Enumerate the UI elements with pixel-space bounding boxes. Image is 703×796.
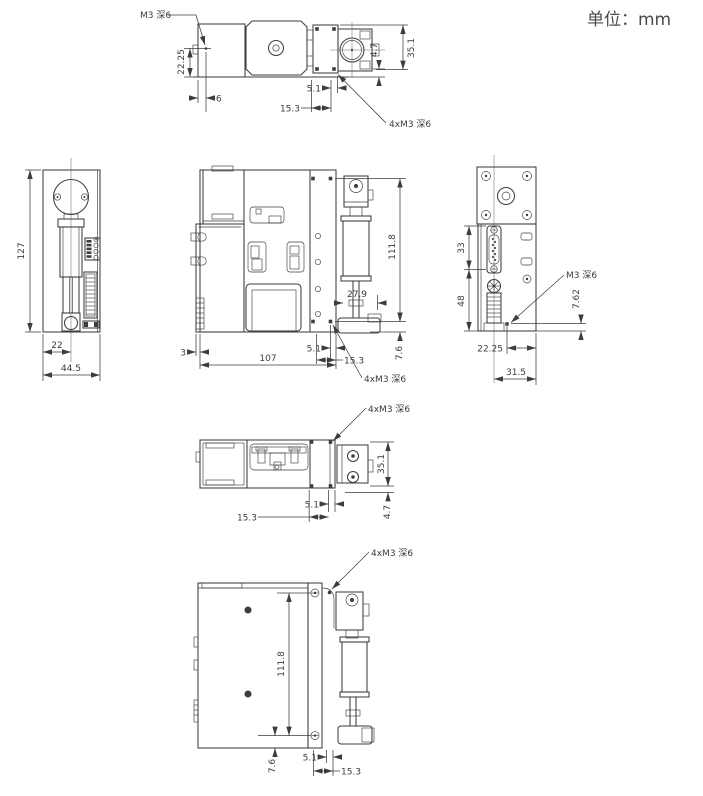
- dim-15-3: 15.3: [237, 514, 257, 524]
- mount-hole-dot: [310, 440, 314, 444]
- syringe-assembly-bottom: [322, 588, 374, 744]
- thread-note-4xm3: 4xM3 深6: [364, 374, 406, 385]
- screw-dot: [245, 691, 252, 698]
- rear-view-body: [196, 440, 373, 488]
- mount-hole-dot: [329, 320, 333, 324]
- mount-hole-dot: [310, 484, 314, 488]
- front-view-dimensions: 111.8 27.9 3 107 5.1 15.3: [180, 179, 406, 386]
- dim-7-6: 7.6: [268, 759, 278, 774]
- engineering-drawing-page: 单位：mm: [0, 0, 703, 796]
- dim-33: 33: [457, 242, 467, 253]
- bottom-view: 4xM3 深6 111.8 7.6 5.1 15.3: [194, 548, 413, 778]
- units-label: 单位：mm: [587, 10, 671, 30]
- dim-15-3: 15.3: [344, 357, 364, 367]
- thread-note-m3: M3 深6: [140, 10, 171, 21]
- mount-hole-dot: [329, 440, 333, 444]
- left-view-body: [43, 158, 100, 362]
- dim-6: 6: [216, 95, 222, 105]
- window-cutouts: [246, 242, 304, 331]
- dim-5-1: 5.1: [303, 754, 317, 764]
- mounting-plate-top: [313, 25, 338, 73]
- mount-hole-dot: [332, 27, 336, 31]
- dim-7-6: 7.6: [395, 346, 405, 361]
- top-view-dimensions: M3 深6 22.25 6 5.1 15.3: [140, 10, 431, 130]
- rear-view-dimensions: 4xM3 深6 35.1 4.7 5.1 15.3: [237, 404, 410, 524]
- dim-5-1: 5.1: [305, 501, 319, 511]
- dim-35-1: 35.1: [377, 454, 387, 474]
- valve-block-rear: [337, 445, 373, 483]
- dim-22-25: 22.25: [477, 345, 503, 355]
- motor-shaft-circle: [269, 41, 284, 56]
- dim-4-7: 4.7: [370, 43, 380, 57]
- top-view-body: [193, 21, 385, 78]
- mounting-strip: [311, 177, 332, 324]
- mount-hole-dot: [329, 177, 333, 181]
- dim-3: 3: [180, 349, 186, 359]
- m3-hole-dot: [505, 322, 508, 325]
- dim-15-3: 15.3: [280, 105, 300, 115]
- dim-111-8: 111.8: [388, 234, 398, 260]
- thread-note-4xm3: 4xM3 深6: [389, 119, 431, 130]
- mount-hole-dot: [311, 320, 315, 324]
- drive-gear: [488, 279, 501, 293]
- thread-note-4xm3: 4xM3 深6: [371, 548, 413, 559]
- right-side-view: 33 48 M3 深6 7.62 22.25 31.5: [457, 155, 597, 385]
- dim-22: 22: [51, 341, 62, 351]
- dim-31-5: 31.5: [506, 368, 526, 378]
- dim-48: 48: [457, 295, 467, 307]
- mount-hole-dot: [315, 67, 319, 71]
- bracket-detail: [250, 444, 308, 470]
- leader-line: [168, 15, 205, 45]
- dim-4-7: 4.7: [383, 505, 393, 519]
- dim-44-5: 44.5: [61, 364, 81, 374]
- thread-note-4xm3: 4xM3 深6: [368, 404, 410, 415]
- side-module: [191, 224, 244, 332]
- left-side-view: 127 22 44.5: [17, 158, 100, 381]
- mount-hole-dot: [332, 67, 336, 71]
- dim-27-9: 27.9: [347, 290, 367, 300]
- dim-5-1: 5.1: [307, 85, 321, 95]
- dim-35-1: 35.1: [407, 38, 417, 58]
- dim-5-1: 5.1: [307, 345, 321, 355]
- dim-7-62: 7.62: [572, 289, 582, 309]
- bottom-view-dimensions: 4xM3 深6 111.8 7.6 5.1 15.3: [258, 548, 413, 778]
- front-view: 111.8 27.9 3 107 5.1 15.3: [180, 166, 406, 385]
- mount-hole-dot: [311, 177, 315, 181]
- rear-view: 4xM3 深6 35.1 4.7 5.1 15.3: [196, 404, 410, 524]
- mount-hole-dot: [329, 484, 333, 488]
- front-view-body: [191, 166, 381, 333]
- screw-dot: [245, 607, 252, 614]
- thread-note-m3: M3 深6: [566, 270, 597, 281]
- dim-107: 107: [259, 354, 276, 364]
- top-view: M3 深6 22.25 6 5.1 15.3: [140, 10, 431, 130]
- dim-111-8: 111.8: [277, 651, 287, 677]
- dim-127: 127: [17, 242, 27, 259]
- mount-hole-dot: [315, 27, 319, 31]
- label-plate: [250, 207, 284, 223]
- drawing-canvas: 单位：mm: [0, 0, 703, 796]
- dim-22-25: 22.25: [177, 49, 187, 75]
- syringe-assembly: [338, 176, 381, 333]
- mounting-strip-bottom: [308, 583, 331, 748]
- dip-switch: [84, 272, 97, 318]
- dim-15-3: 15.3: [341, 768, 361, 778]
- motor-housing-top: [246, 21, 307, 75]
